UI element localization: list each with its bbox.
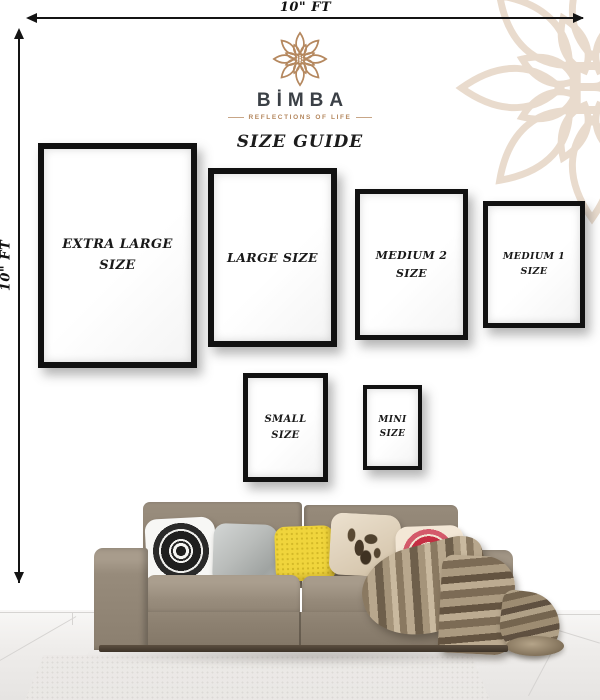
frame-label: LARGE SIZE — [227, 248, 318, 267]
frame-mini: MINI SIZE — [363, 385, 422, 470]
floor-grout-line — [0, 616, 76, 661]
frame-label: MEDIUM 2 SIZE — [376, 247, 448, 281]
top-dimension-line — [28, 17, 583, 19]
left-dimension-label: 10" FT — [0, 231, 14, 301]
bimba-flower-logo-icon: B — [271, 30, 329, 88]
sofa-arm-left — [94, 548, 148, 650]
frame-medium-2: MEDIUM 2 SIZE — [355, 189, 468, 340]
bimba-flower-watermark-icon: B — [447, 0, 600, 233]
frame-label-line2: SIZE — [378, 428, 406, 442]
frame-small: SMALL SIZE — [243, 373, 328, 482]
frame-label-line1: LARGE SIZE — [227, 248, 318, 267]
top-dimension-label: 10" FT — [28, 0, 583, 15]
watermark-monogram: B — [565, 46, 600, 130]
frame-label-line2: SIZE — [62, 256, 173, 276]
frame-label-line1: EXTRA LARGE — [62, 235, 173, 255]
frame-label-line1: SMALL — [264, 412, 306, 428]
floor-grout-line — [0, 612, 94, 613]
frame-large: LARGE SIZE — [208, 168, 337, 347]
frame-label: EXTRA LARGE SIZE — [62, 235, 173, 275]
page-title: SIZE GUIDE — [237, 132, 364, 152]
tagline-rule-right — [356, 117, 372, 118]
sofa-front-seam — [299, 612, 301, 646]
arrowhead-up-icon — [14, 28, 24, 39]
frame-medium-1: MEDIUM 1 SIZE — [483, 201, 585, 328]
frame-label: SMALL SIZE — [264, 412, 306, 443]
frame-label-line1: MEDIUM 1 — [503, 250, 565, 265]
frame-label: MINI SIZE — [378, 414, 406, 442]
frame-label: MEDIUM 1 SIZE — [503, 250, 565, 279]
brand-tagline: REFLECTIONS OF LIFE — [249, 114, 352, 121]
tagline-rule-left — [228, 117, 244, 118]
frame-label-line2: SIZE — [503, 265, 565, 280]
frame-label-line2: SIZE — [264, 428, 306, 444]
brand-tagline-row: REFLECTIONS OF LIFE — [228, 114, 373, 121]
sofa-base — [99, 645, 508, 652]
frame-label-line1: MEDIUM 2 — [376, 247, 448, 264]
sofa-seat-cushion — [146, 575, 300, 615]
frame-extra-large: EXTRA LARGE SIZE — [38, 143, 197, 368]
throw-blanket — [506, 636, 564, 656]
frame-label-line1: MINI — [378, 414, 406, 428]
arrowhead-down-icon — [14, 572, 24, 583]
brand-block: B BİMBA REFLECTIONS OF LIFE SIZE GUIDE — [200, 30, 400, 152]
size-guide-poster: B 10" FT 10" FT — [0, 0, 600, 700]
frame-label-line2: SIZE — [376, 265, 448, 282]
brand-name: BİMBA — [251, 90, 349, 112]
left-dimension-line — [18, 30, 20, 583]
logo-monogram: B — [297, 55, 303, 64]
pillow-yellow-dotted — [274, 525, 336, 582]
